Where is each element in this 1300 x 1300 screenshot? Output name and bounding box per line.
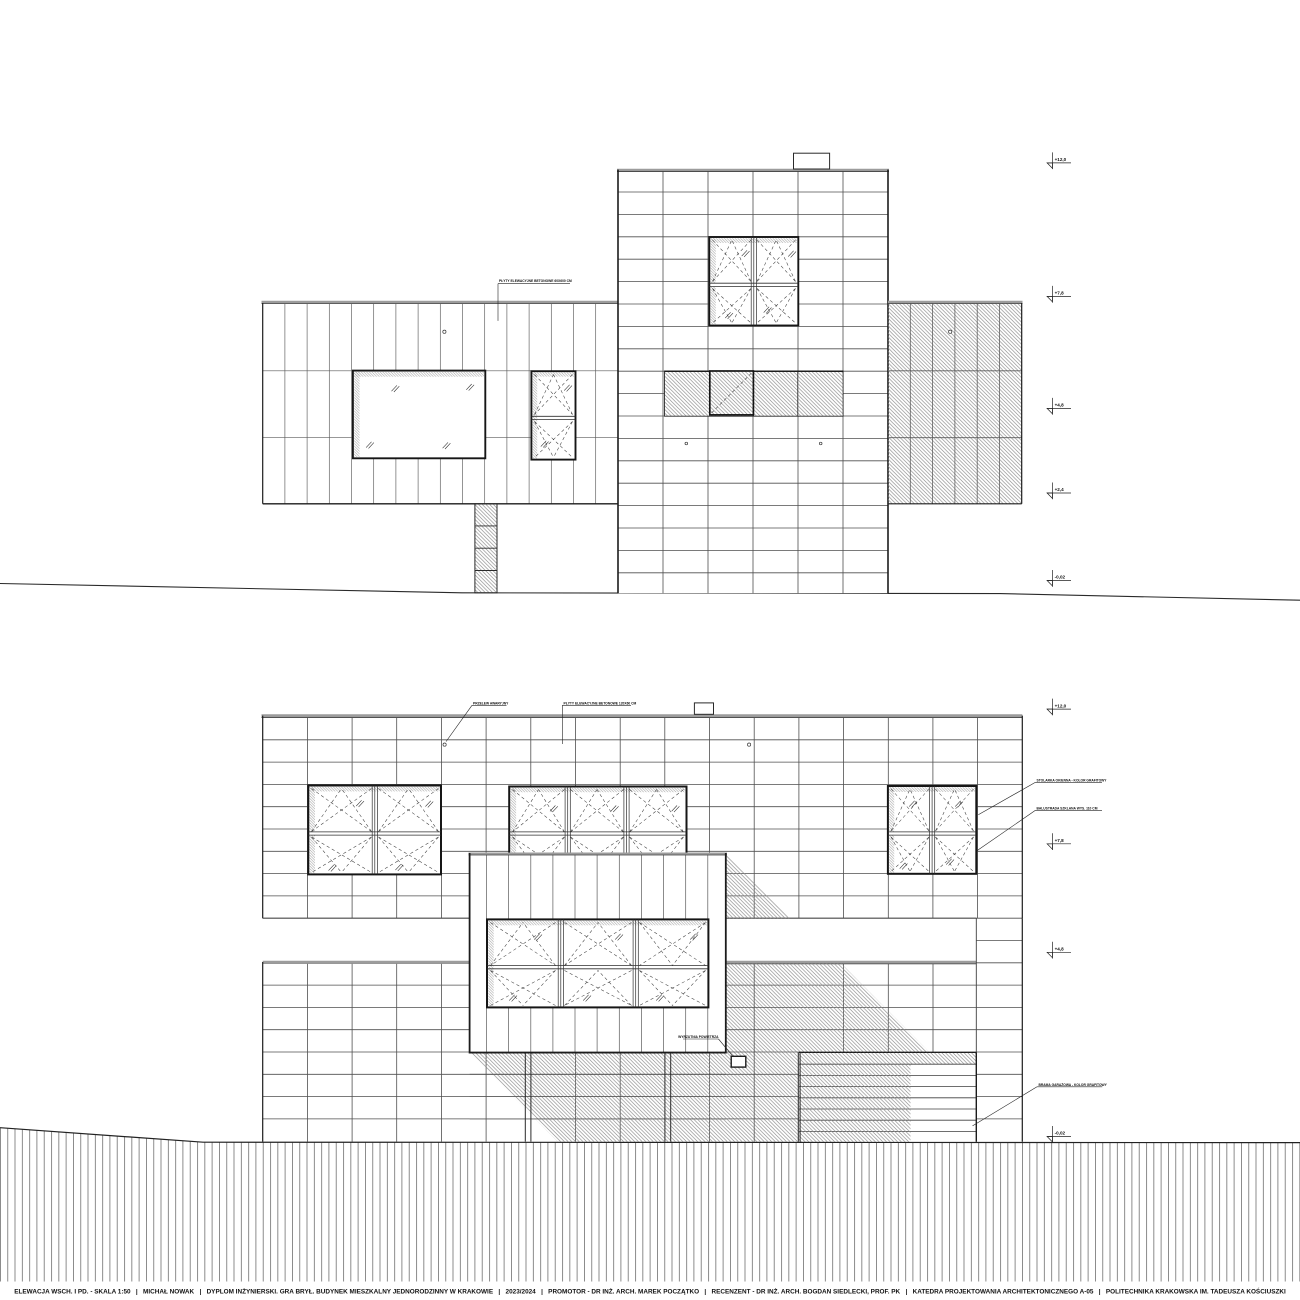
- svg-text:BRAMA GARAŻOWA - KOLOR GRAFITO: BRAMA GARAŻOWA - KOLOR GRAFITOWY: [1039, 1083, 1108, 1087]
- svg-text:+7,8: +7,8: [1055, 291, 1065, 296]
- svg-text:+2,4: +2,4: [1055, 487, 1065, 492]
- svg-text:-0,02: -0,02: [1055, 1131, 1066, 1136]
- svg-text:PŁYTY ELEWACYJNE BETONOWE 60X6: PŁYTY ELEWACYJNE BETONOWE 60X600 CM: [499, 279, 572, 283]
- svg-text:WYRZUTNIA POWIETRZA: WYRZUTNIA POWIETRZA: [678, 1035, 719, 1039]
- svg-text:+4,8: +4,8: [1055, 947, 1065, 952]
- svg-text:ELEWACJA WSCH. I PD. - SKALA 1: ELEWACJA WSCH. I PD. - SKALA 1:50 | MICH…: [14, 1287, 1286, 1296]
- svg-text:-0,02: -0,02: [1055, 575, 1066, 580]
- svg-text:BALUSTRADA SZKLANA WYS. 110 CM: BALUSTRADA SZKLANA WYS. 110 CM: [1037, 806, 1098, 810]
- svg-text:STOLARKA OKIENNA - KOLOR GRAFI: STOLARKA OKIENNA - KOLOR GRAFITOWY: [1037, 778, 1108, 782]
- svg-text:+12,0: +12,0: [1055, 157, 1067, 162]
- svg-text:+4,8: +4,8: [1055, 403, 1065, 408]
- svg-text:+7,8: +7,8: [1055, 838, 1065, 843]
- svg-text:+12,0: +12,0: [1055, 703, 1067, 708]
- svg-text:PŁYTY ELEWACYJNE BETONOWE 120X: PŁYTY ELEWACYJNE BETONOWE 120X60 CM: [564, 701, 637, 705]
- svg-text:PRZELEW AWARYJNY: PRZELEW AWARYJNY: [473, 701, 509, 705]
